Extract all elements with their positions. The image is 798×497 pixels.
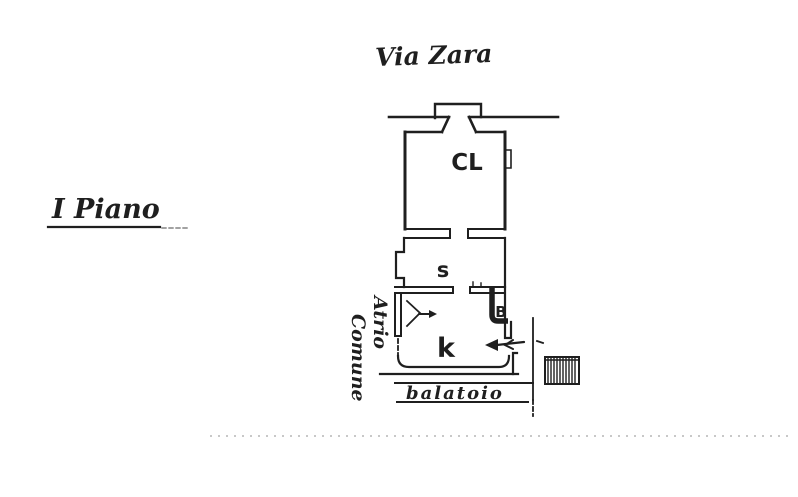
room-b-label: B <box>495 303 506 321</box>
room-s-label: s <box>437 258 450 282</box>
room-cl-label: CL <box>451 150 483 176</box>
paper-background <box>0 0 798 497</box>
floor-label: I Piano <box>51 194 160 225</box>
atrio-label-line1: Atrio <box>369 294 391 349</box>
street-name-label: Via Zara <box>375 39 493 72</box>
balcony-label: balatoio <box>406 383 504 404</box>
atrio-label-line2: Comune <box>347 314 369 402</box>
floor-plan-drawing: Via Zara I Piano CL s k B Atrio Comune b… <box>0 0 798 497</box>
floor-plan-document: Via Zara I Piano CL s k B Atrio Comune b… <box>0 0 798 497</box>
room-k-label: k <box>437 333 456 364</box>
